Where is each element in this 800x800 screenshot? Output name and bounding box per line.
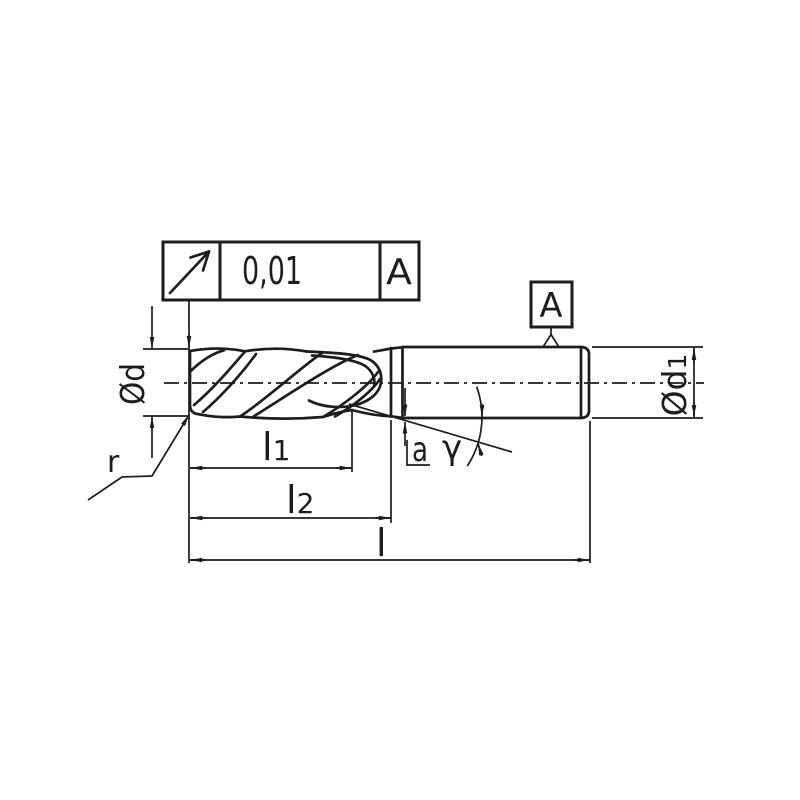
- datum-flag: A: [531, 282, 572, 347]
- corner-radius-label: r: [107, 445, 120, 480]
- circular-runout-icon: [170, 252, 209, 294]
- dim-l1-label: l1: [262, 425, 290, 469]
- datum-triangle-icon: [543, 335, 559, 348]
- dim-l1: l1: [190, 425, 352, 469]
- technical-drawing: 0,01 A A: [0, 0, 800, 800]
- tolerance-value: 0,01: [242, 249, 302, 293]
- tolerance-frame: 0,01 A: [163, 242, 419, 300]
- cutting-diameter-label: Ød: [113, 363, 152, 405]
- dim-l2-label: l2: [286, 478, 314, 522]
- tolerance-datum-ref: A: [386, 252, 412, 293]
- dim-l2: l2: [190, 478, 391, 522]
- end-mill-drawing-canvas: 0,01 A A: [0, 0, 800, 800]
- dim-taper-angle: γ: [349, 387, 512, 468]
- shank-diameter-label: Ød1: [655, 354, 694, 417]
- dim-l-label: l: [376, 521, 387, 565]
- taper-angle-label: γ: [442, 428, 462, 468]
- dim-a: a: [405, 388, 430, 470]
- dim-a-label: a: [412, 430, 428, 470]
- dim-corner-radius: r: [88, 415, 189, 500]
- leader-and-extension-lines: [189, 300, 590, 563]
- datum-flag-label: A: [540, 286, 563, 326]
- dim-l: l: [190, 521, 590, 565]
